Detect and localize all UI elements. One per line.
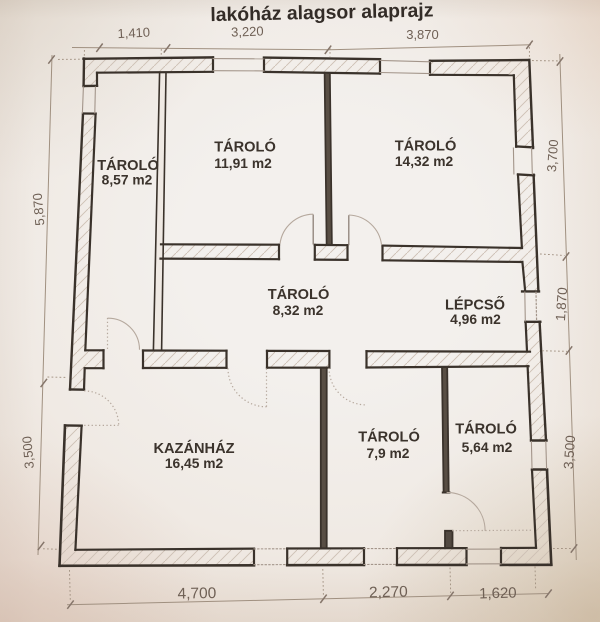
svg-text:TÁROLÓ: TÁROLÓ bbox=[268, 285, 330, 303]
svg-text:1,620: 1,620 bbox=[479, 585, 517, 603]
svg-text:11,91 m2: 11,91 m2 bbox=[214, 156, 272, 171]
svg-text:7,9 m2: 7,9 m2 bbox=[367, 446, 410, 461]
svg-text:3,500: 3,500 bbox=[561, 435, 578, 470]
svg-text:3,870: 3,870 bbox=[406, 27, 439, 42]
svg-text:KAZÁNHÁZ: KAZÁNHÁZ bbox=[153, 440, 234, 457]
svg-text:TÁROLÓ: TÁROLÓ bbox=[395, 137, 457, 155]
svg-text:14,32 m2: 14,32 m2 bbox=[395, 154, 454, 169]
svg-text:3,220: 3,220 bbox=[231, 23, 264, 39]
svg-text:TÁROLÓ: TÁROLÓ bbox=[97, 156, 159, 174]
svg-text:3,500: 3,500 bbox=[19, 436, 37, 470]
svg-text:LÉPCSŐ: LÉPCSŐ bbox=[445, 296, 505, 314]
svg-text:1,410: 1,410 bbox=[117, 24, 150, 41]
svg-text:8,32 m2: 8,32 m2 bbox=[273, 303, 324, 318]
svg-text:4,96 m2: 4,96 m2 bbox=[450, 312, 501, 327]
svg-text:1,870: 1,870 bbox=[553, 287, 570, 322]
svg-text:2,270: 2,270 bbox=[369, 583, 409, 601]
svg-text:5,64 m2: 5,64 m2 bbox=[462, 440, 513, 455]
svg-text:4,700: 4,700 bbox=[177, 585, 216, 603]
svg-text:16,45 m2: 16,45 m2 bbox=[165, 456, 224, 471]
svg-text:3,700: 3,700 bbox=[544, 139, 561, 173]
svg-text:TÁROLÓ: TÁROLÓ bbox=[455, 420, 517, 438]
svg-text:TÁROLÓ: TÁROLÓ bbox=[214, 138, 276, 156]
svg-text:8,57 m2: 8,57 m2 bbox=[102, 172, 153, 187]
svg-text:lakóház alagsor alaprajz: lakóház alagsor alaprajz bbox=[210, 0, 434, 26]
svg-text:5,870: 5,870 bbox=[30, 193, 48, 227]
svg-text:TÁROLÓ: TÁROLÓ bbox=[358, 428, 420, 446]
